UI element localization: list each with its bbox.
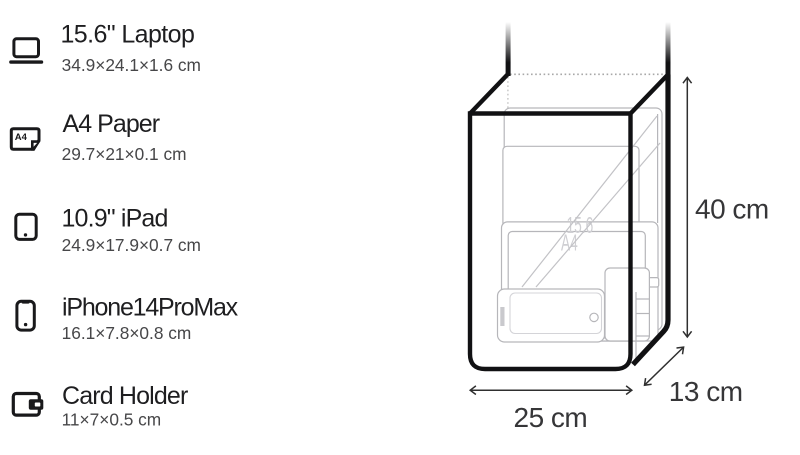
svg-text:40 cm: 40 cm [695,193,769,224]
svg-text:Card Holder: Card Holder [62,382,188,410]
svg-text:25 cm: 25 cm [514,402,588,433]
svg-text:10.9" iPad: 10.9" iPad [62,204,168,232]
svg-text:34.9×24.1×1.6 cm: 34.9×24.1×1.6 cm [62,55,201,75]
svg-text:iPhone14ProMax: iPhone14ProMax [62,294,239,322]
svg-text:11×7×0.5 cm: 11×7×0.5 cm [62,410,162,430]
svg-text:29.7×21×0.1 cm: 29.7×21×0.1 cm [62,144,187,164]
svg-text:13 cm: 13 cm [669,376,743,407]
svg-text:24.9×17.9×0.7 cm: 24.9×17.9×0.7 cm [62,235,201,255]
svg-text:15.6" Laptop: 15.6" Laptop [61,21,195,49]
svg-text:A4: A4 [15,132,28,143]
svg-text:16.1×7.8×0.8 cm: 16.1×7.8×0.8 cm [62,323,192,343]
svg-text:A4 Paper: A4 Paper [63,110,160,138]
